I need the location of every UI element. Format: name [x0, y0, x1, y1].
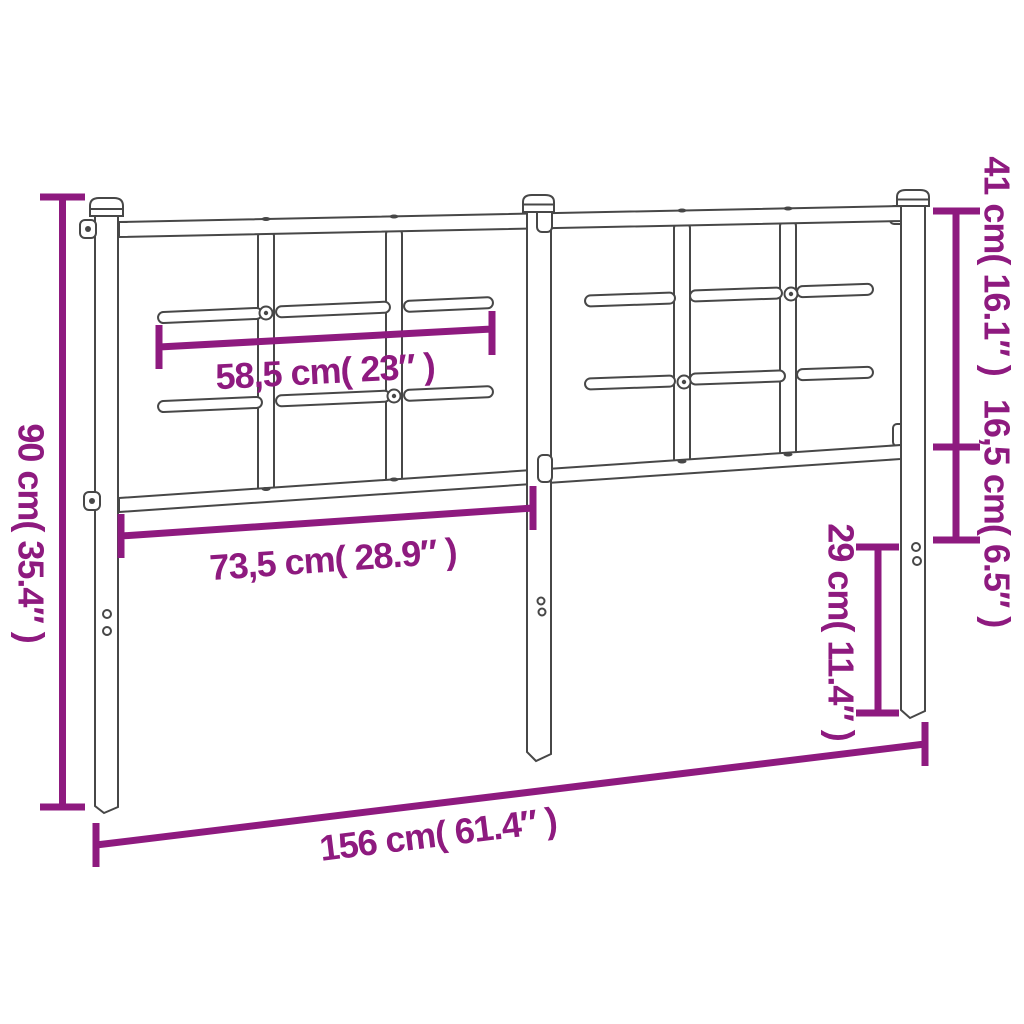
horizontal-slat	[158, 308, 262, 324]
headboard-drawing	[80, 190, 929, 813]
vertical-slat	[674, 222, 690, 468]
label-total-width: 156 cm( 61.4″ )	[317, 799, 559, 869]
headboard-dimension-diagram: 90 cm( 35.4″ ) 58,5 cm( 23″ ) 73,5 cm( 2…	[0, 0, 1024, 1024]
dim-line-right-sections	[933, 211, 980, 540]
horizontal-slat	[585, 292, 675, 306]
horizontal-slat	[690, 287, 782, 301]
horizontal-slat	[158, 397, 262, 413]
horizontal-slat	[797, 367, 873, 381]
label-leg-height: 29 cm( 11.4″ )	[821, 523, 862, 740]
label-total-height: 90 cm( 35.4″ )	[11, 423, 52, 642]
label-top-section-height: 41 cm( 16.1″ )	[977, 156, 1018, 375]
diagram-canvas: 90 cm( 35.4″ ) 58,5 cm( 23″ ) 73,5 cm( 2…	[0, 0, 1024, 1024]
horizontal-slat	[797, 284, 873, 298]
label-lower-rail-span: 73,5 cm( 28.9″ )	[208, 530, 458, 588]
left-post	[95, 216, 118, 813]
right-post	[901, 206, 925, 718]
horizontal-slat	[404, 297, 493, 312]
horizontal-slat	[690, 370, 785, 384]
horizontal-slat	[404, 386, 493, 401]
right-post-cap	[897, 190, 929, 206]
center-post-bracket-lower	[538, 455, 552, 482]
horizontal-slat	[585, 375, 675, 389]
center-post-cap	[523, 195, 554, 212]
vertical-slat	[780, 220, 796, 460]
horizontal-slat	[276, 302, 390, 318]
label-middle-section-height: 16,5 cm( 6.5″ )	[977, 399, 1018, 627]
left-post-cap	[90, 198, 123, 216]
